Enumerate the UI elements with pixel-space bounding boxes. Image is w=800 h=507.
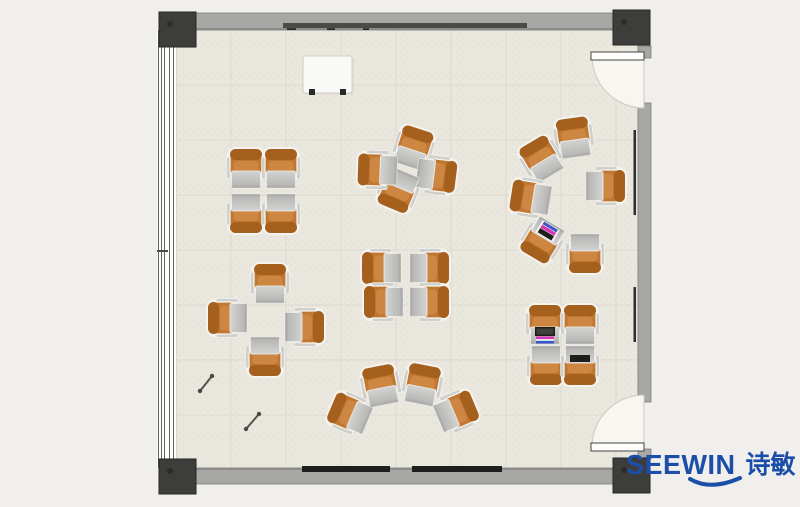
chair-desk-unit [355, 150, 397, 190]
chair-desk-unit [566, 234, 605, 275]
wall-top-inner-edge [176, 28, 638, 30]
chair-desk-unit [227, 194, 266, 235]
corner-column [613, 10, 650, 45]
chair-desk-unit [526, 303, 565, 344]
chair-desk-unit [561, 346, 600, 387]
brand-name-chinese: 诗敏 [746, 452, 796, 478]
chair-desk-unit [206, 299, 247, 338]
chair-desk-unit [285, 308, 326, 347]
floor-plan-canvas [0, 0, 800, 507]
whiteboard-caster [340, 89, 346, 95]
wall-mark [634, 287, 637, 342]
chair-desk-unit [262, 147, 301, 188]
chair-desk-unit [251, 262, 290, 303]
whiteboard-caster [309, 89, 315, 95]
wall-right-segment [638, 103, 651, 402]
chair-desk-unit [410, 249, 451, 288]
chair-desk-unit [360, 249, 401, 288]
chair-desk-unit [586, 167, 627, 206]
logo-swoosh-icon [688, 476, 742, 490]
chair-desk-unit [262, 194, 301, 235]
mobile-whiteboard [303, 56, 352, 93]
corner-column [159, 12, 196, 47]
wall-board-rail [302, 466, 390, 472]
tablet [570, 355, 590, 362]
column-dot [167, 468, 173, 474]
wall-bottom-inner-edge [176, 468, 638, 470]
rail-marker [327, 28, 335, 30]
chair-desk-unit [246, 337, 285, 378]
column-dot [621, 19, 627, 25]
brand-logo: SEEWIN 诗敏 [626, 452, 796, 479]
rail-marker [287, 28, 296, 30]
wall-board-rail [412, 466, 502, 472]
chair-desk-unit [561, 303, 600, 344]
chair-desk-unit [527, 346, 566, 387]
rail-marker [363, 28, 369, 30]
wall-mark [634, 130, 637, 215]
chair-desk-unit [227, 147, 266, 188]
chair-desk-unit [362, 283, 403, 322]
floor-plan-page: SEEWIN 诗敏 [0, 0, 800, 507]
door-leaf [591, 52, 644, 60]
wall-bottom [176, 468, 638, 484]
window-joint-mark [157, 250, 168, 252]
corner-column [159, 459, 196, 494]
chair-desk-unit [410, 283, 451, 322]
wall-board-rail [283, 23, 527, 28]
laptop-papers [535, 327, 555, 344]
column-dot [167, 21, 173, 27]
